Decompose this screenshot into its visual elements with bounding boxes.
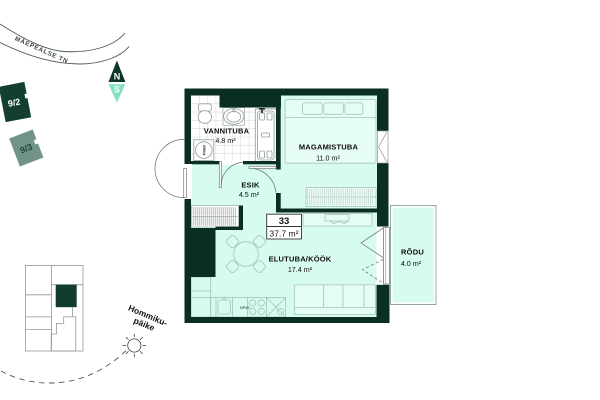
svg-text:ESIK: ESIK — [241, 181, 260, 190]
svg-text:4.0 m²: 4.0 m² — [401, 259, 422, 268]
svg-text:RÕDU: RÕDU — [401, 248, 424, 257]
svg-text:VANNITUBA: VANNITUBA — [204, 126, 250, 135]
svg-text:4.8 m²: 4.8 m² — [215, 136, 236, 145]
svg-text:N: N — [114, 72, 121, 82]
svg-text:PM60: PM60 — [201, 144, 206, 155]
svg-text:4.5 m²: 4.5 m² — [239, 190, 260, 199]
svg-text:MAGAMISTUBA: MAGAMISTUBA — [299, 143, 359, 152]
svg-text:33: 33 — [279, 216, 290, 227]
svg-text:37.7 m²: 37.7 m² — [269, 228, 298, 238]
svg-text:17.4 m²: 17.4 m² — [288, 265, 313, 274]
svg-text:ELUTUBA/KÖÖK: ELUTUBA/KÖÖK — [269, 255, 332, 264]
svg-text:S: S — [114, 85, 120, 95]
svg-text:NP45: NP45 — [240, 306, 250, 310]
svg-text:11.0 m²: 11.0 m² — [316, 154, 340, 163]
